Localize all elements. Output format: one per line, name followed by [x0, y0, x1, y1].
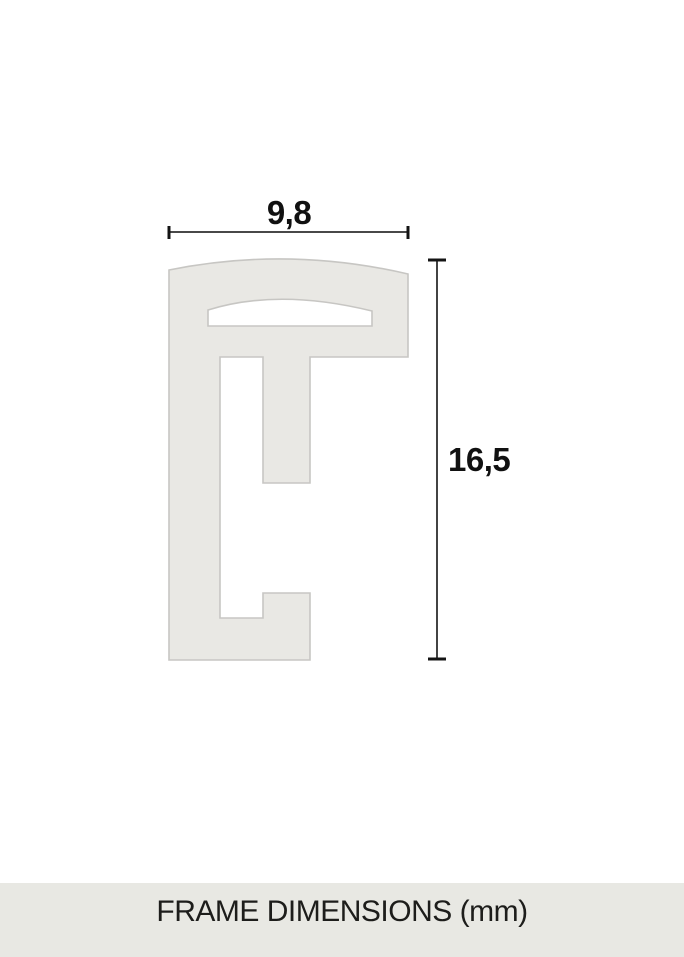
footer-caption-bar: FRAME DIMENSIONS (mm) [0, 883, 684, 957]
footer-caption: FRAME DIMENSIONS (mm) [156, 895, 527, 929]
width-dimension: 9,8 [169, 194, 408, 239]
height-dimension: 16,5 [428, 260, 510, 659]
product-diagram-page: 9,8 16,5 FRAME DIMENSIONS (mm) [0, 0, 684, 957]
height-dimension-label: 16,5 [448, 441, 510, 478]
frame-profile-diagram: 9,8 16,5 [0, 0, 684, 883]
frame-profile-shape [169, 259, 408, 660]
width-dimension-label: 9,8 [267, 194, 312, 231]
